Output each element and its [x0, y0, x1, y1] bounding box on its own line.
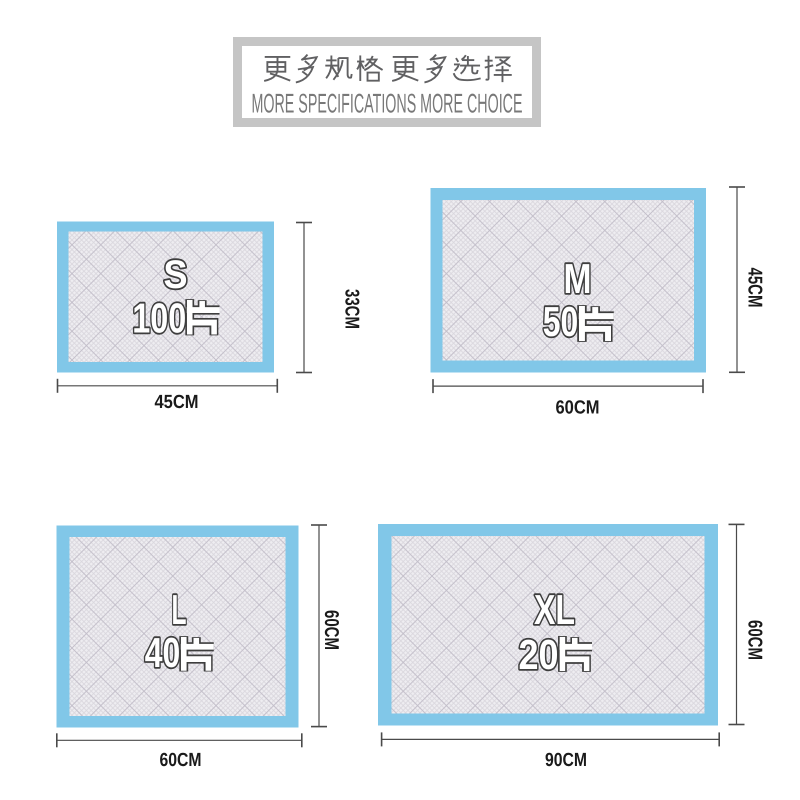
svg-text:XL: XL	[534, 586, 575, 633]
svg-text:60CM: 60CM	[556, 398, 600, 419]
svg-text:33CM: 33CM	[341, 289, 363, 329]
svg-text:MORE SPECIFICATIONS MORE CHOIC: MORE SPECIFICATIONS MORE CHOICE	[252, 89, 523, 119]
svg-text:S: S	[164, 253, 188, 297]
svg-text:100: 100	[132, 295, 186, 342]
svg-text:50: 50	[543, 298, 579, 345]
svg-text:40: 40	[145, 629, 181, 676]
svg-text:45CM: 45CM	[155, 392, 199, 413]
svg-text:60CM: 60CM	[160, 750, 202, 771]
svg-text:20: 20	[519, 631, 559, 678]
svg-text:M: M	[564, 255, 592, 302]
svg-text:60CM: 60CM	[744, 620, 766, 660]
svg-text:60CM: 60CM	[320, 610, 342, 650]
svg-text:L: L	[172, 586, 187, 633]
svg-text:90CM: 90CM	[545, 750, 587, 771]
svg-text:45CM: 45CM	[744, 268, 766, 308]
